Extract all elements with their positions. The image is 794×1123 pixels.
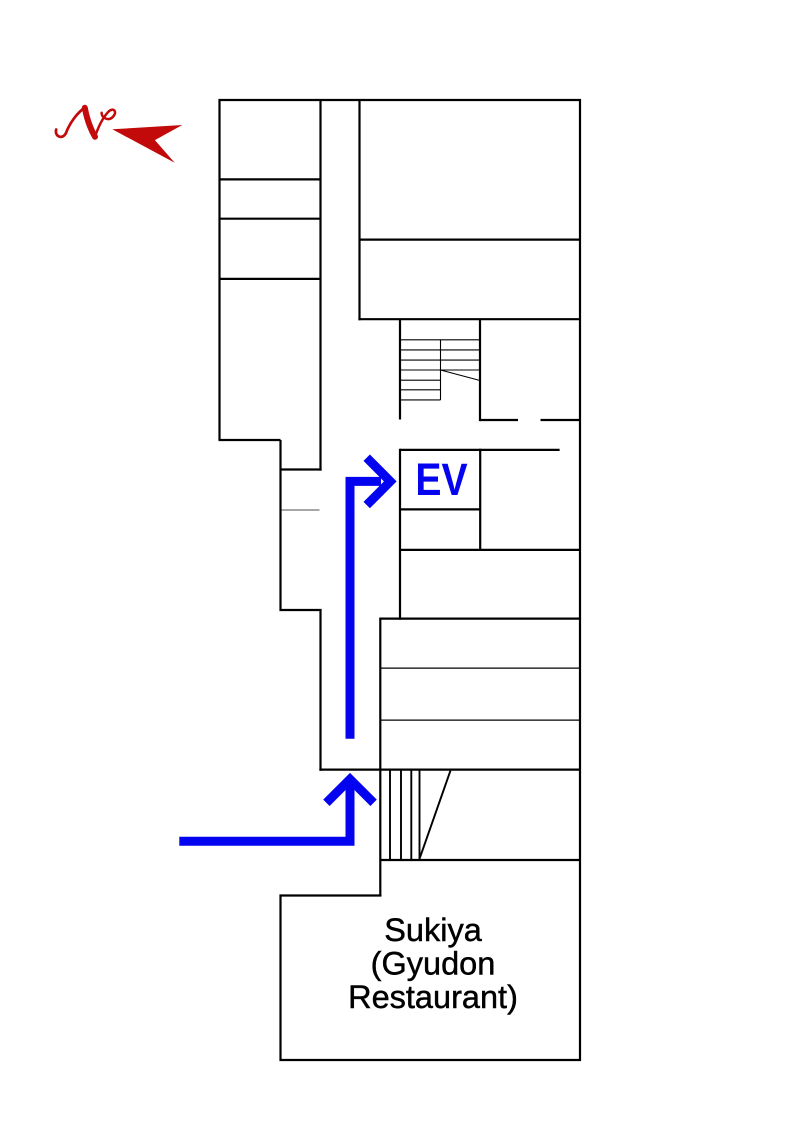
svg-text:(Gyudon: (Gyudon <box>371 946 496 982</box>
svg-text:EV: EV <box>415 454 467 504</box>
svg-text:Sukiya: Sukiya <box>384 912 482 948</box>
svg-text:Restaurant): Restaurant) <box>348 979 518 1015</box>
